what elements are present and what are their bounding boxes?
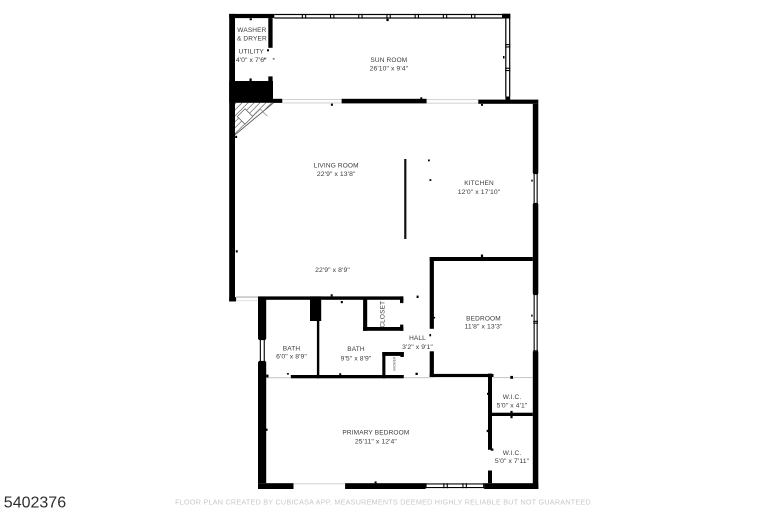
svg-text:UTILITY: UTILITY (239, 48, 265, 55)
svg-text:SUN ROOM: SUN ROOM (370, 57, 407, 64)
svg-text:25'11" x 12'4": 25'11" x 12'4" (355, 439, 397, 446)
svg-text:SHOWER: SHOWER (393, 356, 397, 371)
svg-text:LIVING ROOM: LIVING ROOM (314, 162, 359, 169)
svg-text:WASHER: WASHER (237, 27, 266, 34)
svg-text:5'0" x 4'1": 5'0" x 4'1" (497, 402, 528, 409)
svg-text:KITCHEN: KITCHEN (464, 180, 494, 187)
svg-text:6'0" x 8'9": 6'0" x 8'9" (276, 354, 307, 361)
svg-text:W.I.C.: W.I.C. (503, 450, 522, 457)
svg-text:W.I.C.: W.I.C. (503, 394, 522, 401)
svg-text:26'10" x 9'4": 26'10" x 9'4" (370, 66, 409, 73)
svg-text:4'0" x 7'6": 4'0" x 7'6" (236, 57, 267, 64)
svg-text:PRIMARY BEDROOM: PRIMARY BEDROOM (342, 429, 409, 436)
svg-text:CLOSET: CLOSET (379, 301, 386, 328)
svg-text:& DRYER: & DRYER (237, 35, 267, 42)
svg-text:FLOOR PLAN CREATED BY CUBICASA: FLOOR PLAN CREATED BY CUBICASA APP. MEAS… (175, 497, 593, 506)
svg-text:BATH: BATH (347, 346, 365, 353)
svg-text:BEDROOM: BEDROOM (466, 316, 501, 323)
svg-text:5'0" x 7'11": 5'0" x 7'11" (495, 458, 530, 465)
svg-text:HALL: HALL (409, 335, 426, 342)
svg-text:22'9" x 13'8": 22'9" x 13'8" (317, 171, 356, 178)
svg-text:BATH: BATH (283, 346, 301, 353)
svg-text:9'5" x 8'9": 9'5" x 8'9" (341, 356, 372, 363)
svg-text:22'9" x 8'9": 22'9" x 8'9" (315, 267, 350, 274)
svg-text:11'8" x 13'3": 11'8" x 13'3" (464, 324, 503, 331)
svg-text:5402376: 5402376 (4, 495, 66, 512)
svg-text:3'2" x 9'1": 3'2" x 9'1" (402, 344, 433, 351)
svg-text:12'0" x 17'10": 12'0" x 17'10" (458, 189, 501, 196)
